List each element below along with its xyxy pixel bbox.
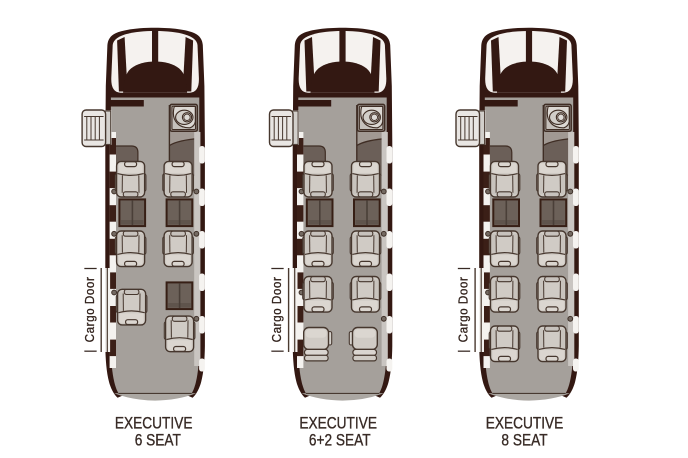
svg-text:EXECUTIVE: EXECUTIVE — [486, 414, 564, 432]
svg-text:EXECUTIVE: EXECUTIVE — [115, 414, 193, 432]
svg-text:8 SEAT: 8 SEAT — [501, 432, 547, 450]
svg-text:EXECUTIVE: EXECUTIVE — [299, 414, 377, 432]
svg-text:6 SEAT: 6 SEAT — [135, 432, 181, 450]
svg-text:6+2 SEAT: 6+2 SEAT — [309, 432, 371, 450]
